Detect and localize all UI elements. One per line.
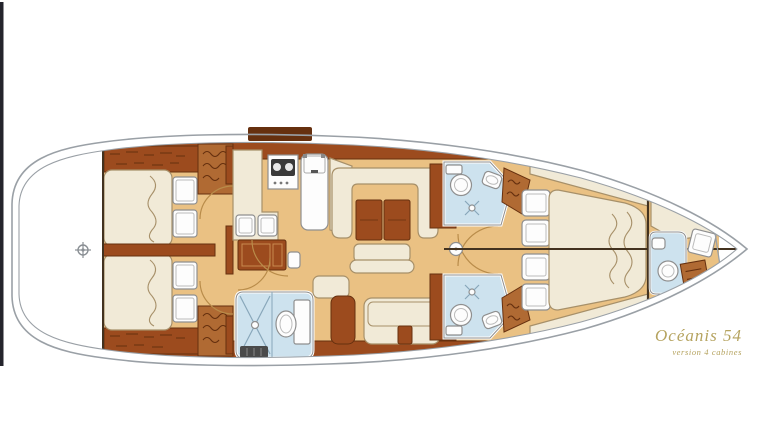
bulkhead-aft-1	[226, 146, 233, 184]
version-label: version 4 cabines	[500, 347, 742, 357]
toilet-starboard	[451, 305, 472, 326]
floor-plan-image: Océanis 54 version 4 cabines	[0, 0, 768, 434]
saloon-bench	[354, 244, 410, 262]
bow-hatch	[687, 228, 716, 257]
scan-edge-bar	[0, 2, 4, 366]
saloon-seat	[331, 296, 355, 344]
aft-bed-port	[104, 170, 172, 246]
companionway-steps	[301, 154, 328, 230]
nav-seat	[288, 252, 300, 268]
toilet-port	[451, 175, 472, 196]
aft-locker-port	[104, 146, 198, 172]
yacht-floor-plan	[0, 0, 768, 434]
model-name: Océanis 54	[500, 326, 742, 346]
bulkhead-aft-2	[226, 226, 233, 274]
bulkhead-aft-3	[226, 316, 233, 354]
crew-sink	[652, 238, 665, 249]
saloon-bolster	[350, 260, 414, 273]
aft-locker-starboard	[104, 328, 198, 354]
shower-drain-icon	[252, 322, 259, 329]
aft-centerline-beam	[103, 244, 215, 256]
sofa-console	[398, 326, 412, 344]
branding-block: Océanis 54 version 4 cabines	[500, 326, 742, 357]
aft-bed-starboard	[104, 254, 172, 330]
crew-toilet	[658, 261, 678, 281]
head-bench	[313, 276, 349, 298]
